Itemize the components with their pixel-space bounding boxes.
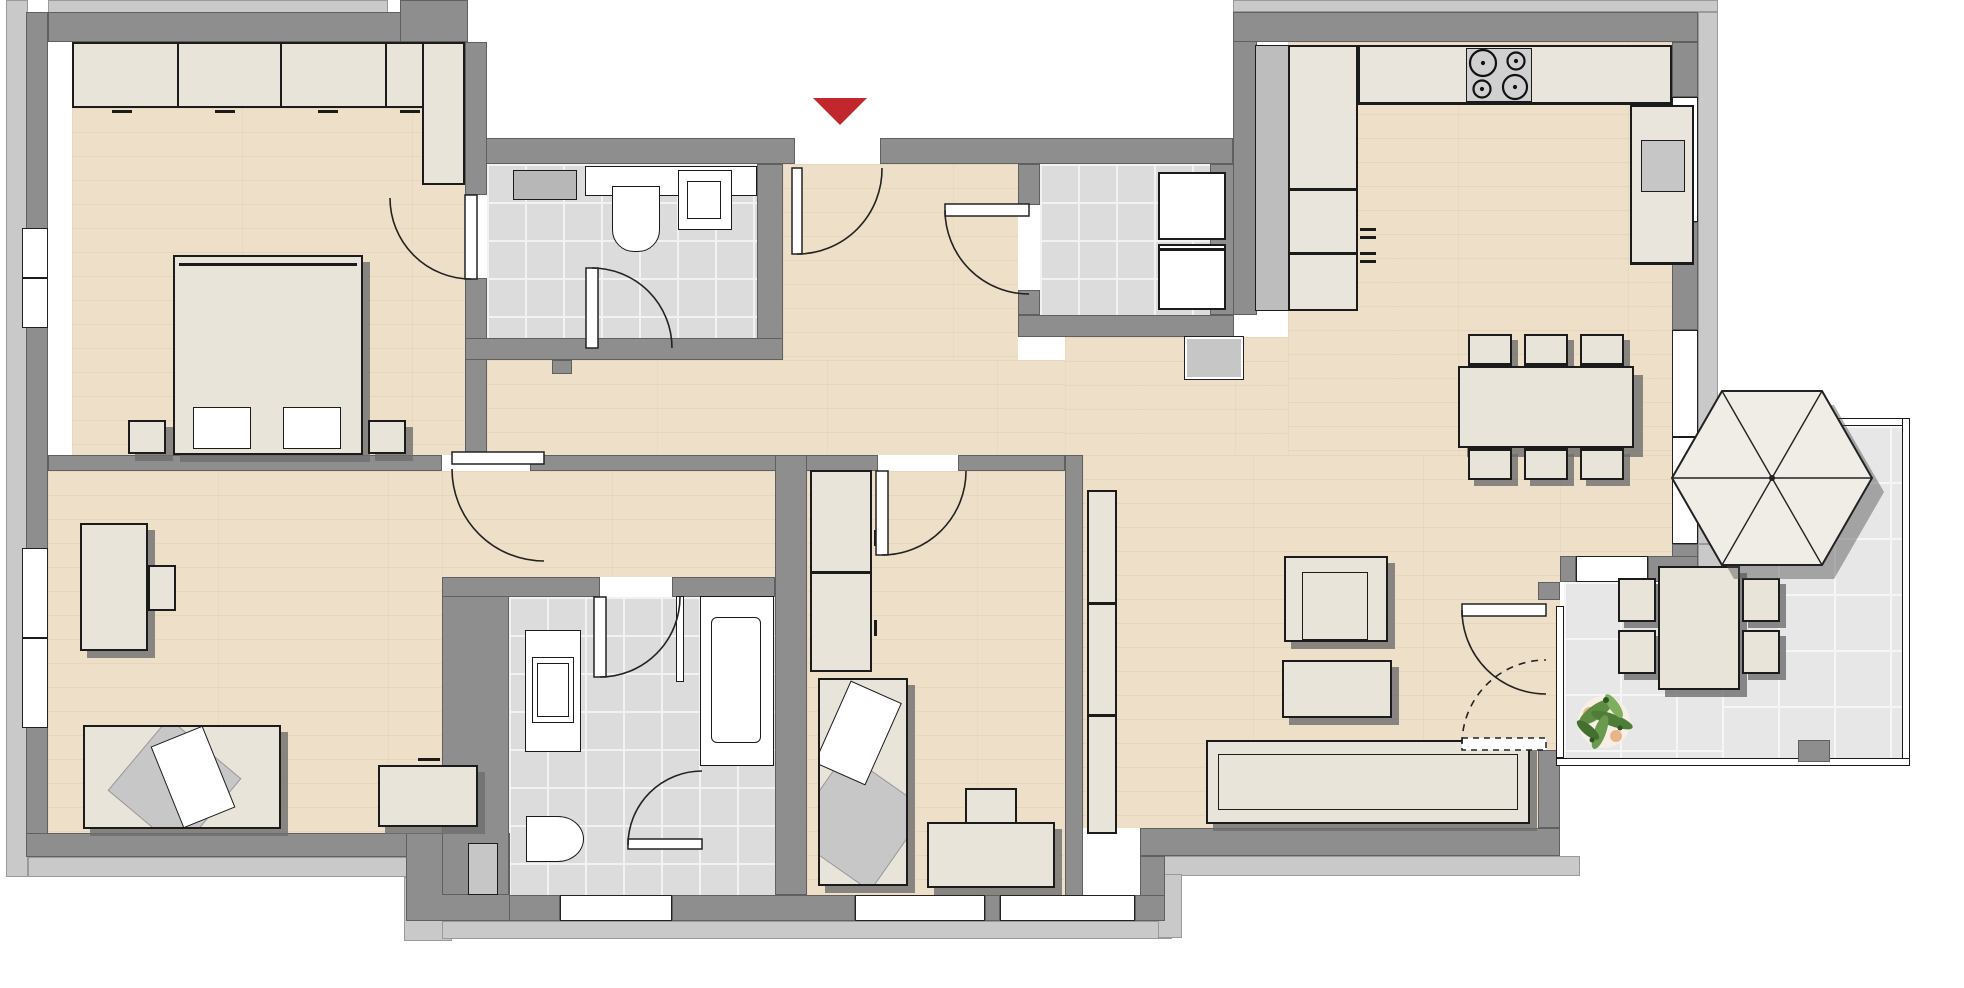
window-living-south: [1000, 895, 1135, 921]
wall-living-divider: [1065, 455, 1083, 921]
window-mullion: [23, 637, 47, 639]
wardrobe-handle: [400, 110, 420, 113]
trim-right: [1698, 12, 1718, 544]
wall-bedroom1-right-b: [465, 278, 487, 455]
wall-entrance-a: [445, 138, 795, 164]
terrace-railing-bottom: [1556, 758, 1910, 766]
trim-top-right: [1233, 0, 1718, 12]
wall-bedroom2-bottom: [26, 833, 432, 857]
dresser-handle: [418, 758, 440, 761]
wall-entrance-b: [880, 138, 1233, 164]
counter-handle: [1360, 228, 1376, 231]
wardrobe-bedroom3: [810, 470, 872, 672]
floor-plan: [0, 0, 1964, 988]
trim-left: [6, 0, 28, 877]
floor-hall-center: [487, 360, 1065, 455]
floor-corridor: [442, 471, 783, 577]
armchair: [1284, 556, 1388, 642]
wall-bath-top-a: [442, 577, 600, 597]
washbasin-wc: [678, 170, 732, 230]
wardrobe3-handle: [874, 530, 877, 546]
single-bed-bedroom3: [818, 678, 908, 886]
countertop-appliance: [1641, 140, 1685, 192]
chimney-block: [468, 843, 498, 895]
entrance-threshold: [795, 138, 880, 164]
corner-cabinet-bedroom1: [422, 42, 465, 185]
wall-wc-pillar: [552, 360, 572, 374]
dining-chair: [1468, 334, 1512, 366]
terrace-railing-top: [1718, 418, 1910, 426]
dining-chair: [1524, 334, 1568, 366]
floor-hall-entrance: [783, 164, 1018, 360]
toilet-bathroom: [526, 816, 584, 862]
dining-table: [1458, 366, 1634, 448]
bathtub: [700, 596, 774, 766]
wardrobe-handle: [215, 110, 235, 113]
wall-top-right: [1233, 12, 1698, 42]
washer: [1158, 172, 1226, 240]
toilet-wc: [612, 186, 660, 252]
terrace-railing-left: [1556, 606, 1564, 758]
wall-bath-top-b: [672, 577, 775, 597]
cooktop: [1466, 48, 1532, 102]
side-table: [1282, 660, 1392, 718]
trim-bottom-left: [28, 857, 432, 877]
double-bed: [173, 255, 363, 455]
counter-handle: [1360, 236, 1376, 239]
radiator-wc: [513, 170, 577, 200]
wardrobe-bedroom1: [72, 42, 430, 108]
shower-glass-partition: [676, 596, 684, 682]
desk-bedroom3: [927, 822, 1055, 888]
counter-handle: [1360, 252, 1376, 255]
wall-bath-bedroom3: [775, 455, 807, 895]
bedroom1-door-leaf: [465, 195, 477, 279]
desk-chair-bedroom3: [965, 788, 1017, 824]
dryer: [1158, 244, 1226, 310]
outdoor-chair: [1618, 578, 1656, 622]
wall-kitchen-left: [1233, 12, 1257, 315]
tall-cabinet-column: [1255, 45, 1289, 311]
wall-stub-top: [400, 0, 468, 42]
window-bathroom-south: [560, 895, 672, 921]
wall-south-c: [985, 895, 1000, 921]
dresser-bedroom2: [378, 765, 478, 827]
trim-bottom-living: [1160, 856, 1580, 876]
dining-chair: [1580, 448, 1624, 480]
desk-chair-bedroom2: [148, 565, 176, 611]
outdoor-chair: [1742, 578, 1780, 622]
trim-bottom-center: [442, 921, 1172, 939]
wall-dining-south-a: [1560, 556, 1576, 582]
wall-left: [26, 12, 48, 857]
wall-south-d: [1135, 895, 1165, 921]
dining-chair: [1580, 334, 1624, 366]
nightstand-right: [368, 420, 406, 454]
kitchen-counter-left: [1288, 45, 1358, 311]
window-mullion: [1673, 436, 1697, 438]
outdoor-chair: [1618, 630, 1656, 674]
wall-mid-b: [958, 455, 1065, 471]
wall-living-bottom: [1140, 828, 1560, 856]
counter-handle: [1360, 260, 1376, 263]
wall-utility-left-a: [1018, 164, 1040, 205]
wall-bedroom-divider: [48, 455, 442, 471]
wardrobe3-handle: [874, 620, 877, 636]
terrace-post: [1798, 740, 1830, 762]
floor-passage: [1065, 337, 1288, 455]
outdoor-table: [1658, 566, 1740, 690]
desk-bedroom2: [80, 523, 148, 651]
wardrobe-handle: [318, 110, 338, 113]
single-bed-bedroom2: [83, 725, 281, 829]
entrance-arrow-icon: [813, 98, 867, 125]
wall-terrace-a: [1538, 582, 1560, 600]
wall-wc-bottom: [465, 338, 783, 360]
wall-bedroom1-right-a: [465, 42, 487, 195]
wall-right-a: [1672, 42, 1698, 97]
outdoor-chair: [1742, 630, 1780, 674]
sofa: [1206, 740, 1530, 824]
window-bedroom3-south: [855, 895, 985, 921]
wall-wc-right: [757, 164, 783, 360]
wall-utility-left-b: [1018, 290, 1040, 315]
vanity-bathroom: [525, 630, 581, 752]
window-mullion: [23, 277, 47, 279]
service-niche: [1185, 337, 1243, 379]
nightstand-left: [128, 420, 166, 454]
dining-chair: [1524, 448, 1568, 480]
terrace-railing-right: [1902, 418, 1910, 766]
dining-chair: [1468, 448, 1512, 480]
sideboard: [1087, 490, 1117, 834]
wardrobe-handle: [112, 110, 132, 113]
wall-south-b: [672, 895, 855, 921]
wall-mid-a: [530, 455, 878, 471]
wall-utility-bottom: [1018, 315, 1234, 337]
